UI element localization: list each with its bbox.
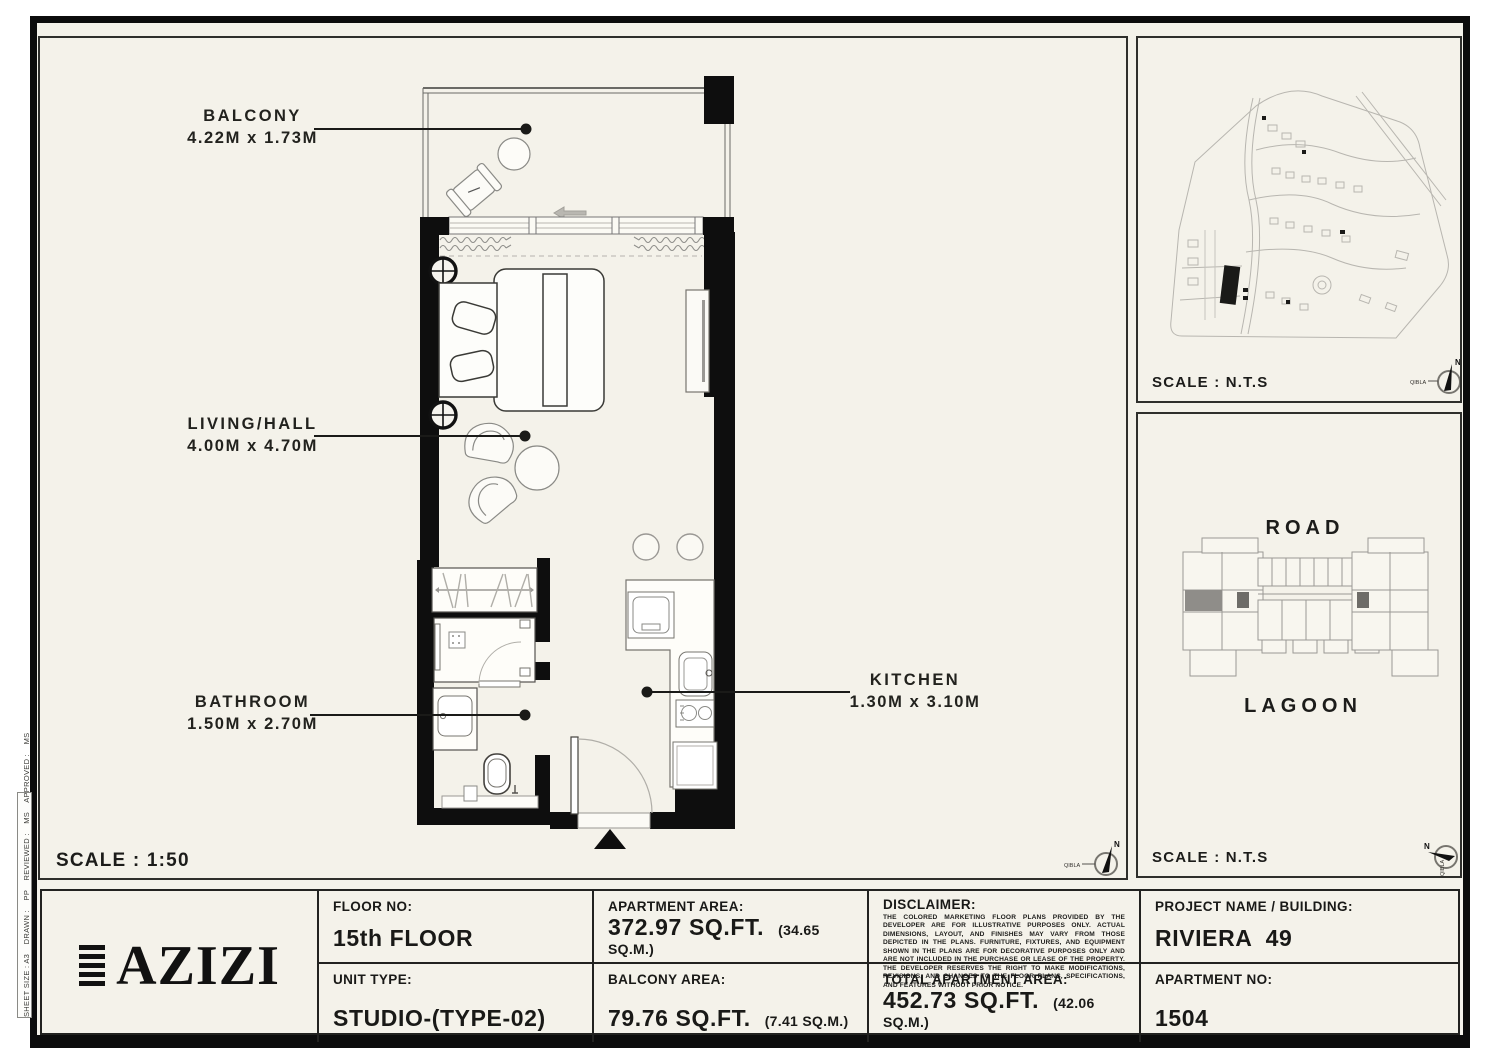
balcony-area-metric: (7.41 SQ.M.)	[765, 1013, 849, 1029]
scale-label-key: SCALE : N.T.S	[1152, 849, 1268, 866]
room-label-living: LIVING/HALL 4.00M x 4.70M	[150, 414, 355, 456]
unit-highlight	[1185, 590, 1222, 611]
svg-text:N: N	[1114, 840, 1120, 849]
scale-label-main: SCALE : 1:50	[56, 850, 190, 872]
room-name: LIVING/HALL	[150, 414, 355, 434]
kitchen-counter	[626, 580, 717, 789]
project-cell: PROJECT NAME / BUILDING: RIVIERA 49	[1139, 891, 1458, 962]
bed	[439, 269, 604, 411]
title-block: AZIZI FLOOR NO: 15th FLOOR APARTMENT ARE…	[40, 889, 1460, 1035]
road-label: ROAD	[1266, 517, 1345, 539]
room-name: BATHROOM	[150, 692, 355, 712]
floor-no-label: FLOOR NO:	[333, 899, 578, 914]
room-dims: 4.00M x 4.70M	[150, 436, 355, 456]
core-hatch	[1237, 592, 1249, 608]
disclaimer-cell: DISCLAIMER: THE COLORED MARKETING FLOOR …	[867, 891, 1139, 962]
wardrobe	[432, 568, 537, 612]
total-area-value: 452.73 SQ.FT.	[883, 987, 1039, 1013]
floor-plan-drawing: N QIBLA	[40, 38, 1126, 878]
balcony-area-value: 79.76 SQ.FT.	[608, 1005, 751, 1031]
lounge-chairs	[460, 418, 559, 527]
svg-text:QIBLA: QIBLA	[1064, 863, 1081, 869]
window-wall	[420, 217, 734, 235]
entry-marker-icon	[594, 829, 626, 849]
balcony-area-label: BALCONY AREA:	[608, 972, 853, 987]
room-name: KITCHEN	[815, 670, 1015, 690]
apartment-area-label: APARTMENT AREA:	[608, 899, 853, 914]
svg-text:N: N	[1455, 358, 1460, 367]
unit-type-label: UNIT TYPE:	[333, 972, 578, 987]
key-plan-panel: ROAD LAGOON	[1136, 412, 1462, 878]
room-dims: 1.50M x 2.70M	[150, 714, 355, 734]
compass-icon: N QIBLA	[1410, 358, 1460, 393]
azizi-logo-icon	[79, 945, 105, 986]
total-area-label: TOTAL APARTMENT AREA:	[883, 972, 1125, 987]
compass-icon: N QIBLA	[1064, 840, 1120, 875]
apartment-no-label: APARTMENT NO:	[1155, 972, 1444, 987]
room-label-bathroom: BATHROOM 1.50M x 2.70M	[150, 692, 355, 734]
unit-type-value: STUDIO-(TYPE-02)	[333, 1005, 578, 1032]
logo-cell: AZIZI	[42, 891, 317, 1042]
balcony-chair	[445, 162, 502, 217]
floor-no-value: 15th FLOOR	[333, 925, 578, 952]
balcony-table	[498, 138, 530, 170]
svg-text:N: N	[1424, 842, 1430, 851]
key-plan-drawing: ROAD LAGOON	[1138, 414, 1460, 876]
sheet-info-strip: SHEET SIZE : A3 DRAWN : PP REVIEWED : MS…	[17, 792, 32, 1018]
apartment-area-cell: APARTMENT AREA: 372.97 SQ.FT.(34.65 SQ.M…	[592, 891, 867, 962]
apartment-no-value: 1504	[1155, 1005, 1444, 1032]
total-area-cell: TOTAL APARTMENT AREA: 452.73 SQ.FT.(42.0…	[867, 962, 1139, 1042]
logo-text: AZIZI	[116, 938, 280, 994]
floor-plan-panel: N QIBLA BALCONY 4.22M x 1.73M LIVING/HAL…	[38, 36, 1128, 880]
side-table	[515, 446, 559, 490]
room-dims: 4.22M x 1.73M	[150, 128, 355, 148]
bar-stools	[633, 534, 703, 560]
floor-no-cell: FLOOR NO: 15th FLOOR	[317, 891, 592, 962]
svg-text:QIBLA: QIBLA	[1440, 859, 1446, 876]
tv-console	[686, 290, 709, 392]
curtain-symbols	[440, 237, 705, 251]
site-plan-panel: N QIBLA SCALE : N.T.S	[1136, 36, 1462, 403]
unit-type-cell: UNIT TYPE: STUDIO-(TYPE-02)	[317, 962, 592, 1042]
project-value: RIVIERA 49	[1155, 925, 1444, 952]
floorplan-sheet: N QIBLA BALCONY 4.22M x 1.73M LIVING/HAL…	[0, 0, 1500, 1061]
bathroom-fixtures	[433, 688, 538, 808]
room-label-kitchen: KITCHEN 1.30M x 3.10M	[815, 670, 1015, 712]
balcony-area-cell: BALCONY AREA: 79.76 SQ.FT.(7.41 SQ.M.)	[592, 962, 867, 1042]
shower-room	[434, 618, 535, 687]
scale-label-site: SCALE : N.T.S	[1152, 374, 1268, 391]
lagoon-label: LAGOON	[1244, 695, 1362, 717]
room-dims: 1.30M x 3.10M	[815, 692, 1015, 712]
apartment-no-cell: APARTMENT NO: 1504	[1139, 962, 1458, 1042]
project-label: PROJECT NAME / BUILDING:	[1155, 899, 1444, 914]
disclaimer-label: DISCLAIMER:	[883, 897, 1125, 912]
entrance-door	[571, 737, 652, 849]
room-name: BALCONY	[150, 106, 355, 126]
sheet-info-text: SHEET SIZE : A3 DRAWN : PP REVIEWED : MS…	[20, 791, 33, 1017]
site-plan-drawing: N QIBLA	[1138, 38, 1460, 401]
apartment-area-value: 372.97 SQ.FT.	[608, 914, 764, 940]
balcony-column	[704, 76, 734, 124]
room-label-balcony: BALCONY 4.22M x 1.73M	[150, 106, 355, 148]
svg-text:QIBLA: QIBLA	[1410, 380, 1427, 386]
core-hatch	[1357, 592, 1369, 608]
compass-icon: N QIBLA	[1424, 842, 1457, 876]
